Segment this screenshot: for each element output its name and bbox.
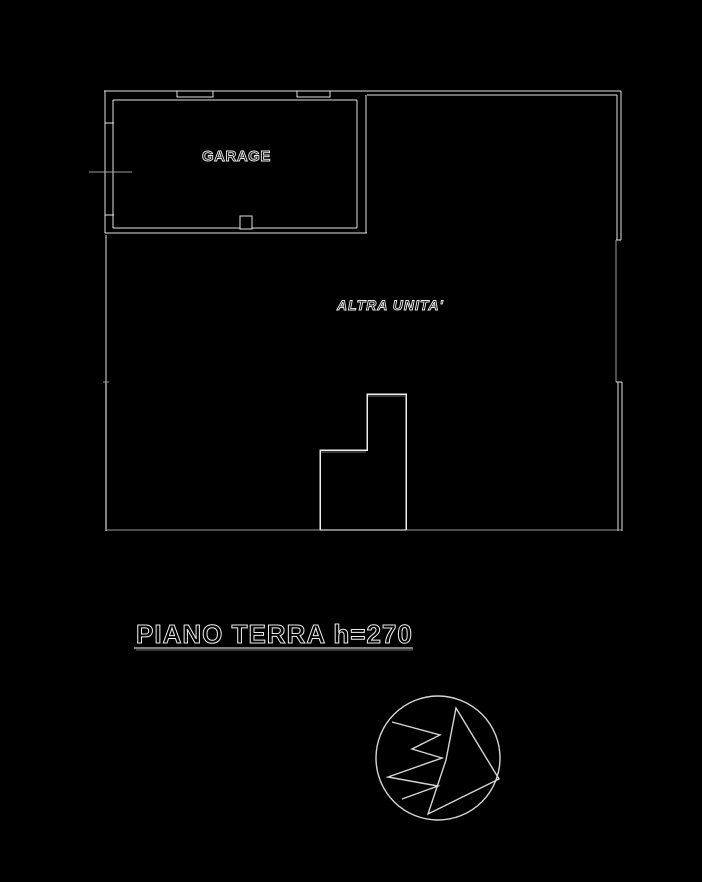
window-opening-right <box>297 91 330 97</box>
floor-title-underline <box>134 648 413 650</box>
floor-plan-drawing: GARAGE ALTRA UNITA' PIANO TERRA h=270 <box>0 0 702 882</box>
garage-door-block <box>240 216 252 229</box>
floor-title: PIANO TERRA h=270 <box>136 619 413 649</box>
other-unit-label: ALTRA UNITA' <box>336 297 444 313</box>
compass-circle <box>376 696 500 820</box>
window-opening-left <box>177 91 213 97</box>
compass-zigzag-tail <box>388 722 442 799</box>
floor-plan-canvas: GARAGE ALTRA UNITA' PIANO TERRA h=270 <box>0 0 702 882</box>
compass-arrowhead <box>428 708 499 814</box>
garage-label: GARAGE <box>202 148 271 165</box>
north-arrow-icon <box>376 696 500 820</box>
stair-step-outline <box>320 394 406 530</box>
